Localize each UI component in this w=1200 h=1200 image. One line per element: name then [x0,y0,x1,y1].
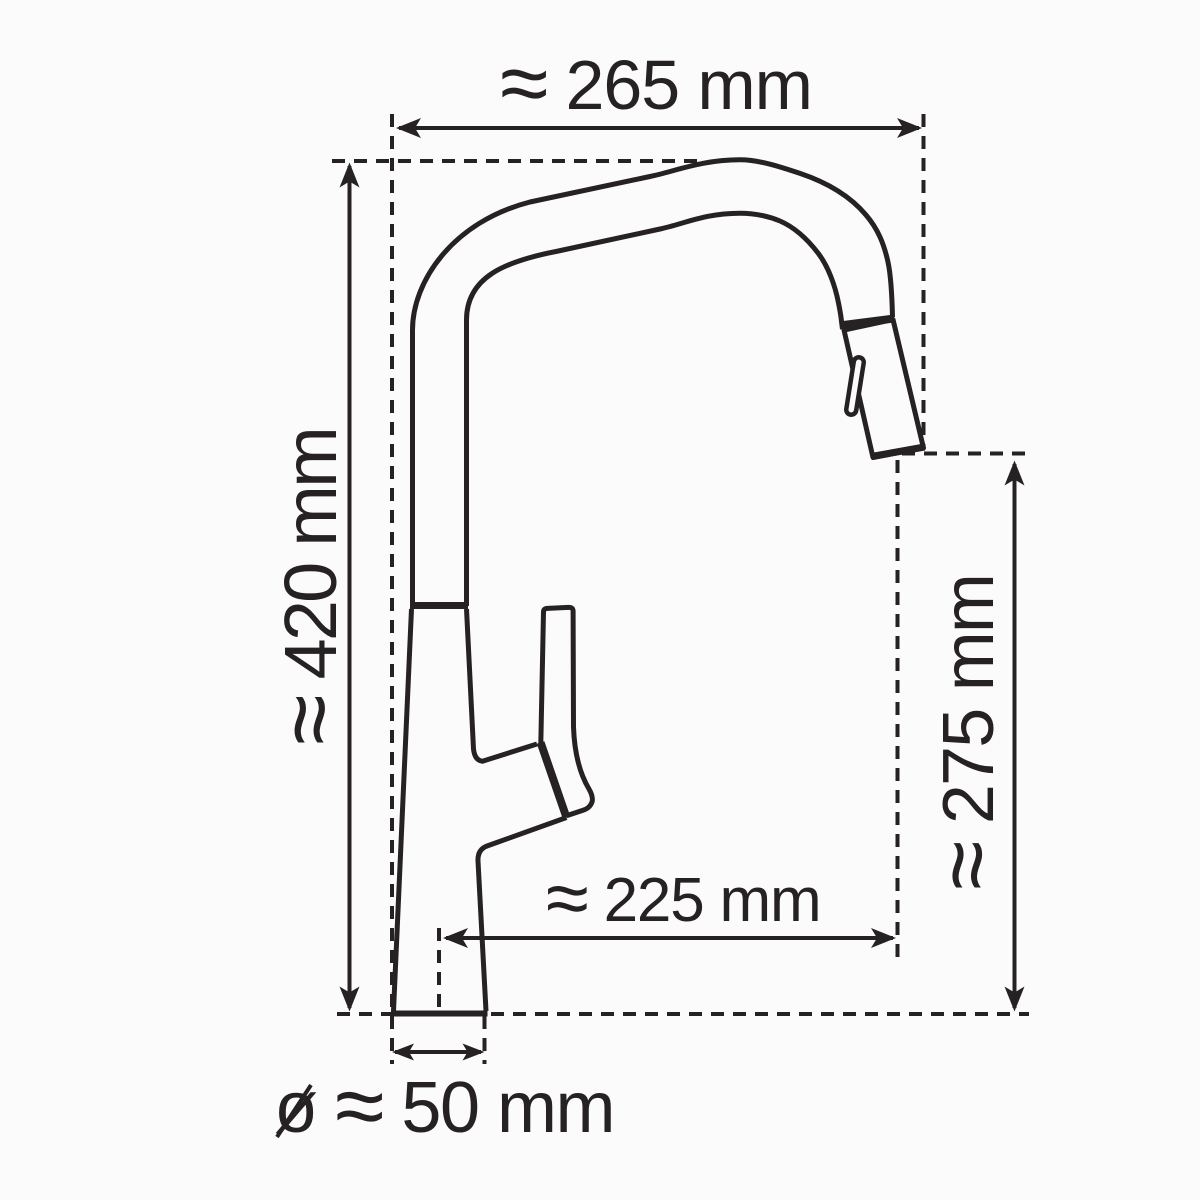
svg-text:≈ 420 mm: ≈ 420 mm [258,429,360,745]
svg-text:≈ 275 mm: ≈ 275 mm [917,575,1017,890]
svg-text:≈ 265 mm: ≈ 265 mm [500,33,812,132]
svg-text:ø ≈ 50 mm: ø ≈ 50 mm [274,1057,614,1157]
svg-text:≈ 225 mm: ≈ 225 mm [546,854,820,942]
